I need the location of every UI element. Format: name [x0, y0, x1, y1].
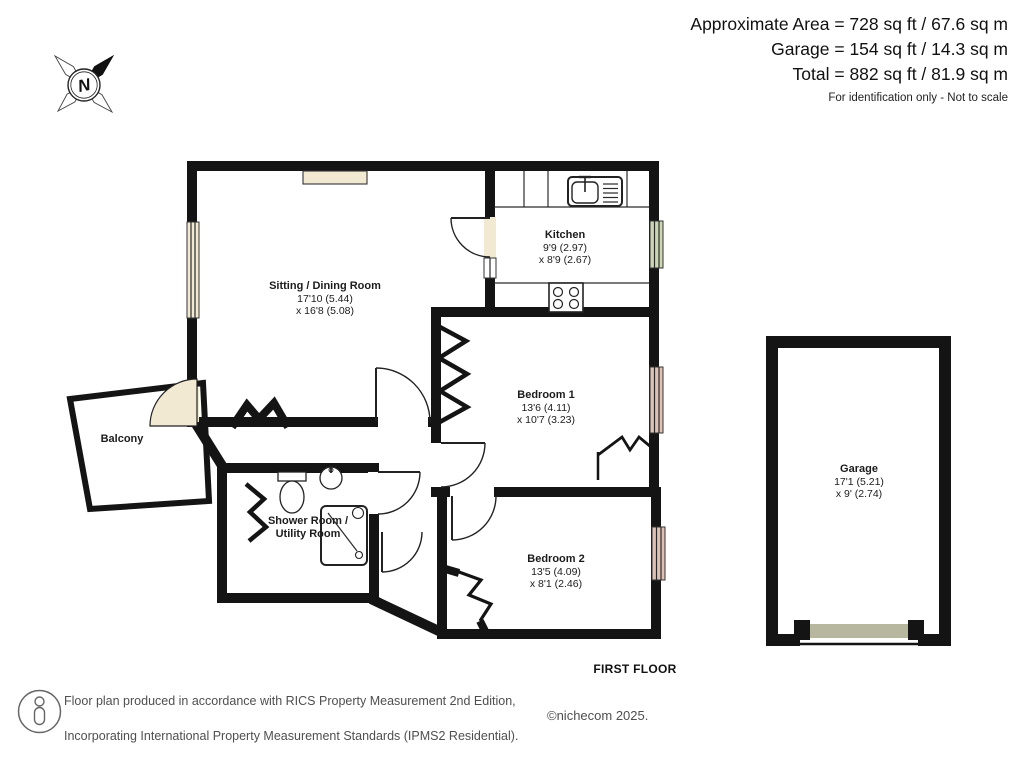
svg-text:9'9 (2.97): 9'9 (2.97): [543, 242, 587, 254]
footer-disclaimer: Floor plan produced in accordance with R…: [64, 693, 518, 757]
bedroom2-door-opening: [450, 486, 494, 498]
svg-text:Kitchen: Kitchen: [545, 229, 586, 241]
window-sitting-west: [187, 222, 199, 318]
svg-text:17'10 (5.44): 17'10 (5.44): [297, 293, 353, 305]
bedroom1-wardrobe: [438, 326, 467, 423]
person-badge-icon: [17, 689, 62, 739]
garage-label: Garage 17'1 (5.21) x 9' (2.74): [834, 463, 884, 500]
floor-label: FIRST FLOOR: [560, 662, 710, 676]
approximate-area-line: Approximate Area = 728 sq ft / 67.6 sq m: [690, 12, 1008, 37]
floorplan-drawing: N: [0, 0, 1024, 757]
total-area-line: Total = 882 sq ft / 81.9 sq m: [690, 62, 1008, 87]
svg-text:x 8'9 (2.67): x 8'9 (2.67): [539, 254, 591, 266]
bedroom2-door-swing: [452, 496, 496, 540]
window-sitting-north: [303, 171, 367, 184]
shower-room-wardrobe: [246, 484, 266, 541]
svg-text:Bedroom 2: Bedroom 2: [527, 553, 584, 565]
kitchen-door-opening: [484, 217, 496, 259]
window-bedroom2-east: [652, 527, 665, 580]
hall-door-swing: [376, 368, 430, 422]
scale-disclaimer: For identification only - Not to scale: [690, 90, 1008, 106]
balcony-label: Balcony: [101, 433, 145, 445]
footer-line2: Incorporating International Property Mea…: [64, 729, 518, 743]
bedroom1-label: Bedroom 1 13'6 (4.11) x 10'7 (3.23): [517, 389, 575, 426]
window-bedroom1-east: [650, 367, 663, 433]
hob-icon: [549, 283, 583, 312]
svg-text:13'6 (4.11): 13'6 (4.11): [521, 402, 570, 414]
hallway-lower-door-swing: [382, 532, 422, 572]
area-summary: Approximate Area = 728 sq ft / 67.6 sq m…: [690, 12, 1008, 106]
sink-icon: [568, 177, 622, 206]
svg-text:17'1 (5.21): 17'1 (5.21): [834, 476, 884, 488]
floorplan-page: Approximate Area = 728 sq ft / 67.6 sq m…: [0, 0, 1024, 757]
svg-text:x 8'1 (2.46): x 8'1 (2.46): [530, 578, 582, 590]
bedroom2-label: Bedroom 2 13'5 (4.09) x 8'1 (2.46): [527, 553, 584, 590]
footer-line1: Floor plan produced in accordance with R…: [64, 694, 516, 708]
garage-area-line: Garage = 154 sq ft / 14.3 sq m: [690, 37, 1008, 62]
glazed-panel-kitchen: [484, 258, 496, 278]
svg-text:Garage: Garage: [840, 463, 878, 475]
bedroom2-closet: [442, 568, 491, 633]
hall-lower-wall: [371, 599, 443, 633]
bedroom1-corner-closet: [598, 437, 657, 480]
basin-icon: [320, 466, 342, 489]
svg-text:x 10'7 (3.23): x 10'7 (3.23): [517, 414, 575, 426]
svg-text:13'5 (4.09): 13'5 (4.09): [531, 566, 581, 578]
hall-door-opening: [378, 416, 428, 428]
svg-text:Utility Room: Utility Room: [276, 528, 341, 540]
shower-door-opening: [368, 472, 380, 514]
compass-icon: N: [55, 56, 113, 112]
copyright-notice: ©nichecom 2025.: [547, 708, 648, 723]
svg-text:x 9' (2.74): x 9' (2.74): [836, 488, 882, 500]
svg-text:Sitting / Dining Room: Sitting / Dining Room: [269, 280, 381, 292]
sitting-room-label: Sitting / Dining Room 17'10 (5.44) x 16'…: [269, 280, 381, 317]
svg-text:Bedroom 1: Bedroom 1: [517, 389, 574, 401]
toilet-icon: [278, 472, 306, 513]
svg-text:Shower Room /: Shower Room /: [268, 515, 348, 527]
kitchen-label: Kitchen 9'9 (2.97) x 8'9 (2.67): [539, 229, 591, 266]
window-kitchen-east: [650, 221, 663, 268]
shower-door-swing: [378, 472, 420, 514]
bedroom1-door-swing: [441, 443, 485, 487]
bedroom1-door-opening: [430, 443, 442, 487]
shower-room-label: Shower Room / Utility Room: [268, 515, 348, 540]
svg-text:x 16'8 (5.08): x 16'8 (5.08): [296, 305, 354, 317]
